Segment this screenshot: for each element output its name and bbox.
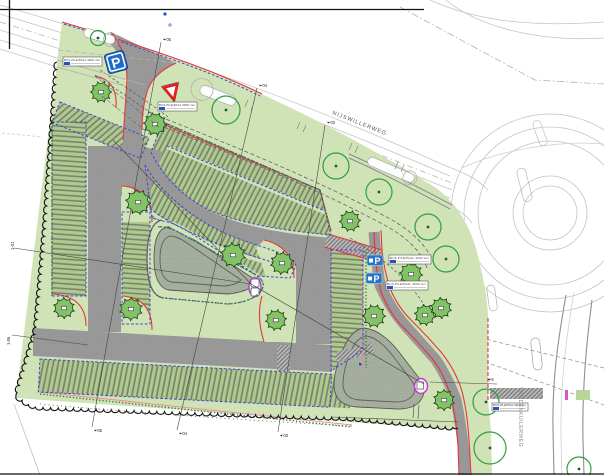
svg-text:VRODENKUILERWEG: VRODENKUILERWEG	[517, 387, 523, 447]
svg-text:BUS PILE/PAAL 3600 mm: BUS PILE/PAAL 3600 mm	[159, 103, 196, 107]
svg-text:⏷8: ⏷8	[488, 377, 494, 382]
svg-text:P: P	[375, 256, 381, 266]
svg-text:1-01: 1-01	[10, 241, 15, 250]
svg-text:⏷05: ⏷05	[94, 428, 103, 433]
svg-text:BUS PILE/PAAL 3600 mm: BUS PILE/PAAL 3600 mm	[390, 256, 430, 260]
svg-text:⏷05: ⏷05	[163, 37, 172, 42]
svg-text:1-06: 1-06	[6, 336, 11, 345]
svg-text:⏷03: ⏷03	[327, 120, 336, 125]
svg-text:⏷04: ⏷04	[259, 83, 268, 88]
svg-text:BUS PILE/PAAL 3600 mm: BUS PILE/PAAL 3600 mm	[64, 58, 101, 62]
svg-text:P: P	[374, 274, 380, 284]
svg-text:⏷04: ⏷04	[179, 431, 188, 436]
svg-text:BUS PILE/PAAL 3600 mm: BUS PILE/PAAL 3600 mm	[387, 282, 427, 286]
svg-text:⏷03: ⏷03	[280, 433, 289, 438]
